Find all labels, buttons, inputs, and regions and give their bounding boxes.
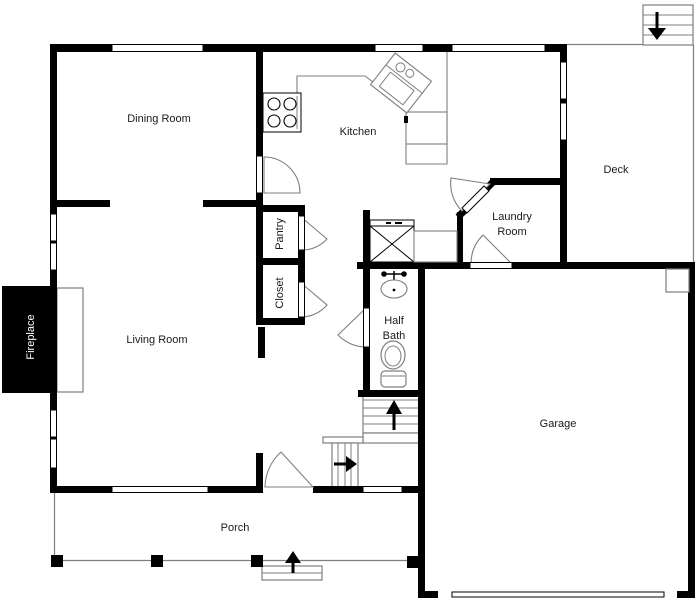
wall-front-door-stub <box>256 453 263 487</box>
kitchen-door-swing <box>264 157 300 193</box>
porch-steps <box>262 551 322 580</box>
closet-door-leaf <box>299 282 305 317</box>
wall-laundry-left <box>457 212 463 262</box>
window-left-2 <box>51 243 57 270</box>
window-right-1 <box>561 62 567 99</box>
wall-garage-left <box>418 262 425 598</box>
wall-laundry-top <box>490 178 560 185</box>
laundry-counter <box>414 231 457 262</box>
garage-utility-nook <box>666 269 689 292</box>
floor-plan: Dining Room Kitchen Deck Laundry Room Pa… <box>0 0 700 601</box>
wall-pantry-right-mid <box>298 250 305 283</box>
wall-hall-stub <box>258 327 265 358</box>
wall-halfbath-left-lower <box>363 347 370 397</box>
floor-plan-drawing: Dining Room Kitchen Deck Laundry Room Pa… <box>0 0 700 601</box>
toilet-icon <box>381 341 406 387</box>
bathroom-sink-icon <box>381 271 407 298</box>
porch-post <box>151 555 163 567</box>
laundry-door-sill <box>470 263 512 269</box>
window-right-2 <box>561 103 567 140</box>
porch-label: Porch <box>221 522 250 534</box>
refrigerator-icon <box>404 112 447 144</box>
pantry-label: Pantry <box>274 218 286 250</box>
wall-closet-right-lower <box>298 317 305 325</box>
washer-icon <box>370 220 414 262</box>
wall-pantry-right-upper <box>298 205 305 217</box>
wall-porch-garage-stub <box>407 556 418 568</box>
garage-door <box>452 592 664 597</box>
window-front <box>112 487 208 493</box>
kitchen-label: Kitchen <box>340 126 377 138</box>
deck-stairs <box>643 5 693 45</box>
pantry-door-leaf <box>299 216 305 250</box>
wall-pantry-closet-divider <box>256 258 305 265</box>
kitchen-door-leaf <box>257 156 263 193</box>
dining-room-label: Dining Room <box>127 113 191 125</box>
window-left-4 <box>51 439 57 468</box>
garage-label: Garage <box>540 418 577 430</box>
half-bath-label-line2: Bath <box>383 330 406 342</box>
half-bath-door-leaf <box>364 308 370 347</box>
wall-closet-bottom <box>256 318 305 325</box>
opening-stair-landing <box>363 487 402 493</box>
fireplace-hearth <box>57 288 83 392</box>
wall-halfbath-left-upper <box>363 210 370 308</box>
stove-icon <box>263 93 301 132</box>
half-bath-door-swing <box>338 308 366 347</box>
window-top-3 <box>452 45 545 52</box>
porch-post <box>51 555 63 567</box>
wall-dining-living-left <box>50 200 110 207</box>
kitchen-sink-icon <box>371 53 432 113</box>
laundry-room-label-line1: Laundry <box>492 211 532 223</box>
deck-outline <box>567 45 694 263</box>
closet-label: Closet <box>274 277 286 308</box>
fireplace-label: Fireplace <box>25 314 37 359</box>
wall-halfbath-bottom <box>358 390 425 397</box>
window-left-1 <box>51 214 57 241</box>
stair-landing-left <box>323 437 363 443</box>
living-room-label: Living Room <box>126 334 187 346</box>
wall-mid-long <box>357 262 695 269</box>
lower-stairs <box>332 443 358 488</box>
wall-dining-living-right <box>203 200 263 207</box>
wall-pantry-top <box>256 205 305 212</box>
wall-garage-right <box>688 262 695 598</box>
main-stairs <box>323 392 420 443</box>
porch-post <box>251 555 263 567</box>
kitchen-counter <box>297 52 447 164</box>
window-top-1 <box>112 45 203 52</box>
deck-label: Deck <box>603 164 629 176</box>
front-door-swing <box>265 452 313 487</box>
laundry-door-swing <box>471 235 511 263</box>
window-left-3 <box>51 410 57 437</box>
stair-landing <box>363 433 420 443</box>
half-bath-label-line1: Half <box>384 315 405 327</box>
wall-dining-kitchen <box>256 44 263 156</box>
window-top-2 <box>375 45 423 52</box>
laundry-room-label-line2: Room <box>497 226 526 238</box>
